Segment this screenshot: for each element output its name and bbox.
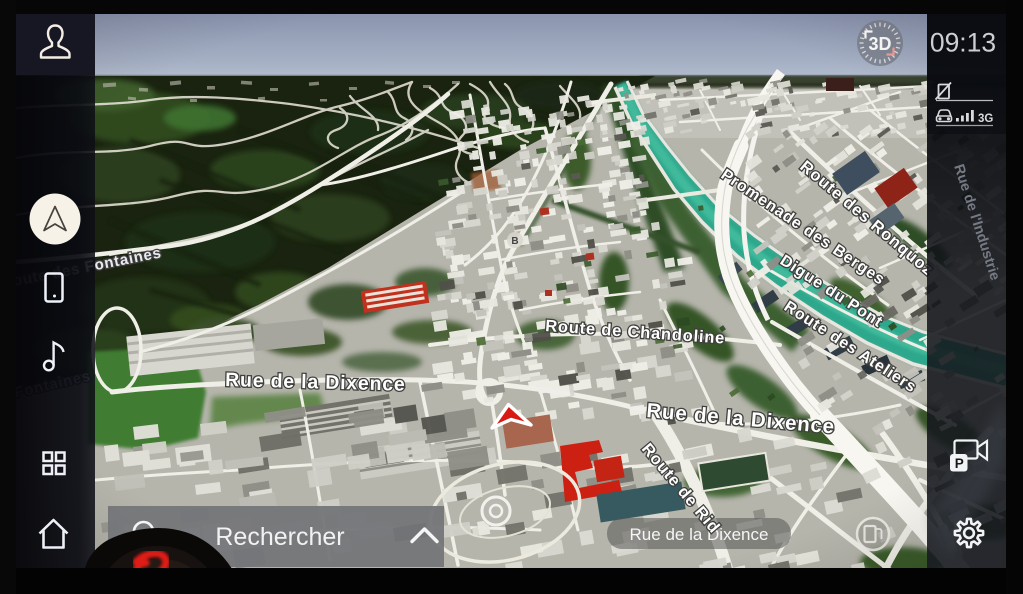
svg-text:P: P [955, 456, 964, 471]
svg-text:3G: 3G [978, 113, 993, 125]
svg-text:Rechercher: Rechercher [215, 523, 344, 551]
svg-text:09:13: 09:13 [930, 28, 996, 58]
